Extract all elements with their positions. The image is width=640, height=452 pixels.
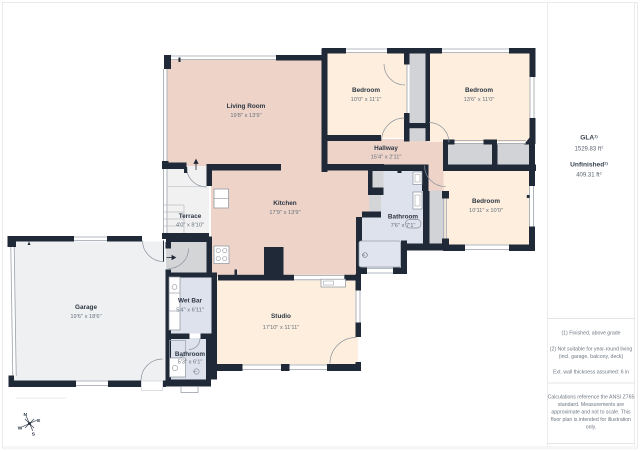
svg-text:7'6" x 7'1": 7'6" x 7'1"	[391, 223, 416, 229]
svg-text:17'10" x 11'11": 17'10" x 11'11"	[263, 325, 300, 331]
svg-text:Wet Bar: Wet Bar	[178, 298, 203, 305]
svg-text:17'9" x 13'9": 17'9" x 13'9"	[269, 210, 300, 216]
svg-text:Bedroom: Bedroom	[352, 87, 380, 94]
svg-text:409.31 ft2: 409.31 ft2	[576, 171, 602, 179]
svg-text:19'6" x 18'6": 19'6" x 18'6"	[70, 314, 101, 320]
svg-text:(1) Finished, above grade: (1) Finished, above grade	[561, 331, 620, 337]
svg-text:Living Room: Living Room	[227, 103, 266, 110]
svg-text:Bathroom: Bathroom	[388, 214, 418, 221]
svg-text:Kitchen: Kitchen	[273, 200, 297, 207]
svg-text:10'0" x 11'1": 10'0" x 11'1"	[351, 97, 382, 103]
svg-text:(incl. garage, balcony, deck): (incl. garage, balcony, deck)	[559, 354, 624, 360]
svg-text:Garage: Garage	[75, 304, 97, 311]
svg-text:4'0" x 8'10": 4'0" x 8'10"	[176, 223, 204, 229]
svg-text:1529.83 ft2: 1529.83 ft2	[575, 145, 605, 153]
svg-text:Studio: Studio	[271, 313, 291, 320]
svg-text:standard. Measurements are: standard. Measurements are	[558, 402, 624, 408]
svg-text:only.: only.	[586, 425, 597, 431]
svg-text:5'3" x 6'1": 5'3" x 6'1"	[178, 360, 203, 366]
svg-text:approximate and not to scale.: approximate and not to scale. This	[551, 410, 631, 416]
svg-text:Bathroom: Bathroom	[175, 351, 205, 358]
svg-text:Terrace: Terrace	[179, 213, 202, 220]
svg-text:floor plan is intended for ill: floor plan is intended for illustration	[551, 417, 631, 423]
svg-text:5'4" x 6'11": 5'4" x 6'11"	[176, 308, 204, 314]
svg-text:10'11" x 10'0": 10'11" x 10'0"	[469, 208, 503, 214]
svg-text:19'8" x 13'9": 19'8" x 13'9"	[230, 113, 261, 119]
svg-text:15'4" x 2'11": 15'4" x 2'11"	[371, 155, 402, 161]
svg-text:(2) Not suitable for year-roun: (2) Not suitable for year-round living	[550, 347, 633, 353]
svg-text:Bedroom: Bedroom	[472, 198, 500, 205]
svg-text:13'6" x 11'0": 13'6" x 11'0"	[464, 97, 495, 103]
svg-text:Hallway: Hallway	[374, 145, 398, 152]
svg-text:Unfinished2): Unfinished2)	[570, 161, 608, 169]
svg-text:Ext. wall thickness assumed: 6: Ext. wall thickness assumed: 6 in	[553, 370, 629, 376]
svg-text:N: N	[23, 412, 27, 418]
svg-text:W: W	[18, 426, 23, 432]
svg-text:Calculations reference the ANS: Calculations reference the ANSI Z765	[548, 395, 635, 401]
svg-text:Bedroom: Bedroom	[465, 87, 493, 94]
